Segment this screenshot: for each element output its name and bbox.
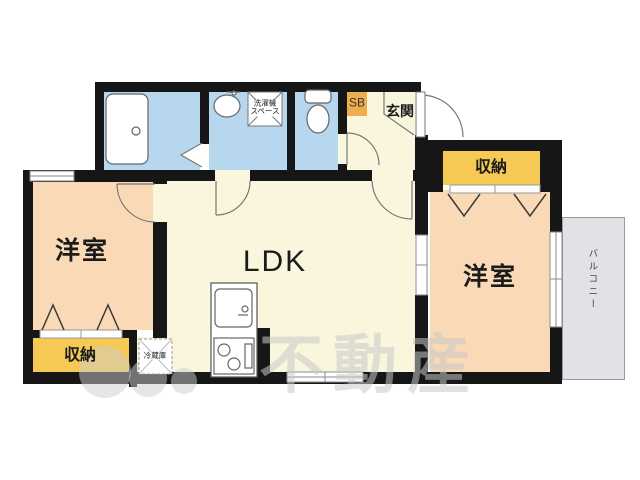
fixture-label-refrigerator: 冷蔵庫: [144, 352, 167, 360]
wall-segment: [200, 82, 209, 144]
wall-segment: [428, 151, 443, 192]
wall-segment: [23, 170, 33, 384]
wall-segment: [153, 172, 167, 184]
wall-segment: [287, 82, 295, 181]
room-label-balcony: バルコニー: [586, 249, 597, 312]
floor-plan: LDK 洋室 洋室 収納 収納 玄関 SB バルコニー 洗濯機 スペース 冷蔵庫…: [0, 0, 640, 480]
wall-segment: [550, 140, 562, 232]
wall-segment: [23, 170, 167, 182]
bathroom-floor: [104, 92, 200, 170]
room-label-storage-right: 収納: [475, 159, 507, 177]
wall-segment: [250, 170, 372, 181]
room-label-entrance: 玄関: [386, 104, 414, 120]
room-label-shoe-box: SB: [349, 96, 365, 109]
door-opening: [215, 170, 250, 182]
door-opening: [153, 184, 167, 222]
room-label-bedroom-right: 洋室: [463, 263, 517, 291]
wall-segment: [540, 151, 550, 192]
wall-segment: [153, 222, 167, 338]
wall-segment: [425, 140, 562, 151]
watermark: 不動産: [259, 314, 481, 406]
wall-segment: [338, 82, 347, 134]
toilet-floor: [295, 92, 338, 170]
wall-segment: [129, 330, 137, 387]
entrance-door-leaf: [416, 92, 425, 137]
wall-segment: [95, 82, 104, 180]
room-label-storage-left: 収納: [64, 347, 96, 365]
fixture-label-washing-machine: 洗濯機 スペース: [250, 100, 279, 117]
door-opening: [372, 170, 413, 182]
wall-segment: [23, 330, 40, 338]
wall-segment: [550, 327, 562, 380]
door-opening: [338, 134, 347, 164]
wall-segment: [122, 330, 137, 338]
wall-segment: [338, 164, 347, 181]
room-label-bedroom-left: 洋室: [55, 237, 109, 265]
room-label-ldk: LDK: [243, 245, 307, 279]
wall-segment: [95, 82, 421, 92]
wall-segment: [415, 172, 428, 235]
